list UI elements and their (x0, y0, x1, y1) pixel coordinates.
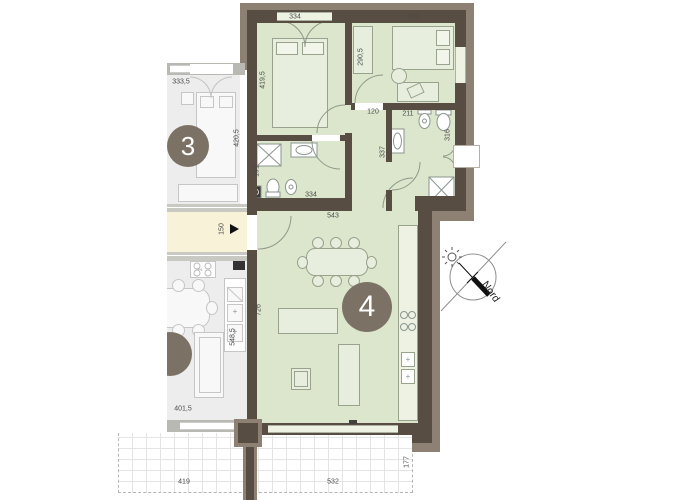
sideboard (338, 344, 360, 406)
chair (330, 237, 342, 249)
partition (386, 190, 392, 211)
chair (366, 256, 377, 269)
unit3-number: 3 (181, 131, 195, 162)
sofa (278, 308, 338, 334)
unit4-badge: 4 (342, 282, 392, 332)
wall-step (415, 196, 466, 211)
bed-a-pillow (302, 42, 324, 55)
partition (386, 110, 392, 162)
sofa-3-seat (199, 337, 221, 393)
entrance-arrow-icon (230, 224, 239, 234)
corridor-wall-top (167, 204, 247, 212)
stove-3 (190, 261, 216, 278)
wall-outer (432, 211, 474, 221)
chair-3 (206, 301, 218, 315)
corridor-wall-bottom (167, 252, 247, 261)
faucet-icon (233, 261, 245, 270)
floor-plan: PL (0, 0, 690, 500)
dining-table (306, 248, 368, 276)
bed-3-pillow (219, 96, 233, 108)
sink-3 (227, 287, 243, 302)
door-gap (355, 103, 383, 110)
chair (330, 275, 342, 287)
wall-outer (412, 443, 440, 452)
dresser-3 (178, 184, 238, 202)
door-gap-3 (190, 64, 233, 74)
wall-outer (432, 221, 440, 452)
appliance-3 (227, 324, 243, 342)
window-3 (170, 65, 190, 73)
partition (247, 198, 352, 211)
terrace (118, 433, 413, 493)
unit4-number: 4 (359, 290, 376, 324)
door-gap (312, 135, 340, 141)
terrace-column-stem-core (246, 447, 254, 500)
terrace-column-core (238, 423, 258, 443)
appliance-3 (227, 304, 243, 322)
kitchen-sink (401, 369, 415, 384)
exterior-door (453, 145, 480, 168)
chair (297, 256, 308, 269)
window (455, 47, 466, 83)
wall-right-lower (418, 211, 432, 435)
bed-b-pillow (436, 30, 450, 46)
partition (345, 133, 352, 205)
chair (348, 237, 360, 249)
window (277, 12, 332, 21)
chair (312, 237, 324, 249)
bed-a-pillow (276, 42, 298, 55)
sun-icon (442, 247, 462, 267)
stove-label: PL (198, 267, 203, 272)
kitchen-sink (401, 352, 415, 367)
terrace-window (268, 425, 398, 433)
wall-outer (466, 3, 474, 221)
coffee-table-inner (294, 371, 308, 387)
bed-b-pillow (436, 49, 450, 65)
compass-label: Nord (479, 279, 502, 305)
wall-right-upper (455, 10, 466, 211)
kitchen-counter (398, 225, 418, 421)
wall-outer (240, 3, 247, 70)
entrance-door-gap (247, 215, 257, 250)
window-3 (180, 422, 240, 430)
unit3-badge: 3 (167, 125, 209, 167)
wardrobe-b (353, 26, 373, 74)
wall-outer (240, 3, 474, 10)
wall-corner (412, 423, 432, 443)
dining-table-3 (162, 288, 210, 328)
chair (312, 275, 324, 287)
nightstand (181, 92, 194, 105)
chair-3 (172, 279, 185, 292)
window-handle (349, 420, 357, 424)
partition (345, 23, 352, 105)
plan-crop-mask (0, 0, 167, 433)
bed-3-pillow (200, 96, 214, 108)
chair-3 (192, 279, 205, 292)
